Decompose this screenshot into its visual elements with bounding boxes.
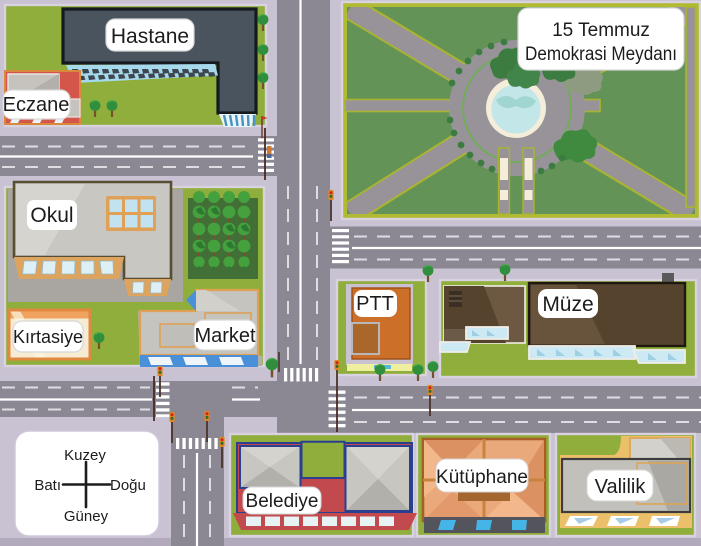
svg-text:Batı: Batı bbox=[34, 477, 61, 494]
svg-text:Müze: Müze bbox=[542, 293, 593, 316]
svg-text:Market: Market bbox=[194, 325, 256, 347]
svg-text:Demokrasi Meydanı: Demokrasi Meydanı bbox=[525, 44, 677, 65]
svg-text:Güney: Güney bbox=[64, 508, 109, 525]
svg-text:Doğu: Doğu bbox=[110, 477, 146, 494]
svg-text:Okul: Okul bbox=[30, 204, 73, 227]
svg-text:Valilik: Valilik bbox=[595, 476, 647, 498]
svg-text:Eczane: Eczane bbox=[3, 94, 70, 116]
svg-text:Kütüphane: Kütüphane bbox=[436, 467, 528, 488]
svg-text:Hastane: Hastane bbox=[111, 25, 189, 48]
svg-text:15 Temmuz: 15 Temmuz bbox=[552, 20, 650, 41]
svg-text:Kırtasiye: Kırtasiye bbox=[13, 327, 83, 347]
svg-text:Belediye: Belediye bbox=[246, 491, 319, 512]
svg-text:Kuzey: Kuzey bbox=[64, 447, 106, 464]
svg-text:PTT: PTT bbox=[356, 293, 394, 315]
